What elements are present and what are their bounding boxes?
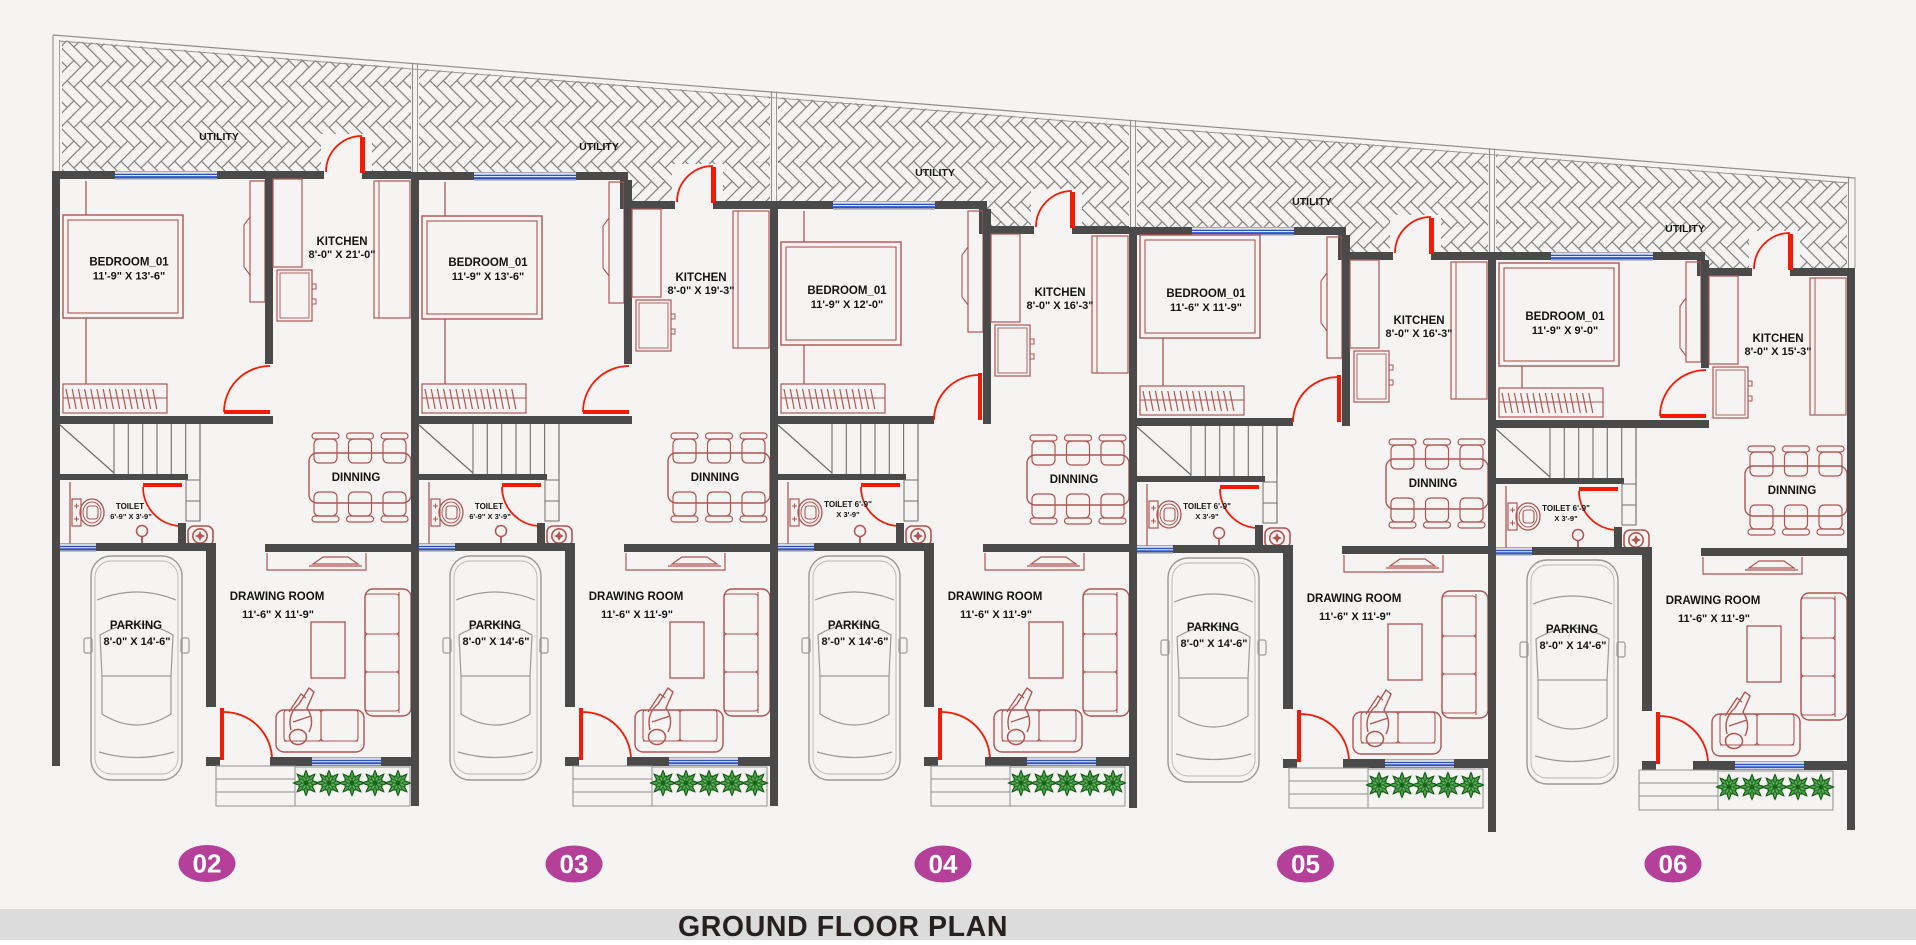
svg-text:X 3'-9": X 3'-9" (1195, 512, 1219, 521)
svg-text:PARKING: PARKING (469, 620, 521, 632)
svg-text:TOILET 6'-9": TOILET 6'-9" (824, 500, 872, 509)
svg-text:UTILITY: UTILITY (199, 131, 239, 143)
svg-text:X 3'-9": X 3'-9" (1554, 514, 1578, 523)
svg-text:11'-9" X 13'-6": 11'-9" X 13'-6" (93, 271, 166, 283)
svg-text:TOILET 6'-9": TOILET 6'-9" (1542, 504, 1590, 513)
svg-text:11'-6" X 11'-9": 11'-6" X 11'-9" (242, 609, 314, 621)
svg-text:PARKING: PARKING (110, 620, 162, 632)
svg-text:04: 04 (929, 849, 958, 879)
svg-text:BEDROOM_01: BEDROOM_01 (448, 257, 528, 269)
svg-text:BEDROOM_01: BEDROOM_01 (89, 257, 169, 269)
svg-text:UTILITY: UTILITY (1665, 223, 1705, 235)
svg-text:11'-6" X 11'-9": 11'-6" X 11'-9" (1678, 613, 1750, 625)
svg-text:8'-0" X 14'-6": 8'-0" X 14'-6" (1180, 638, 1247, 650)
svg-text:8'-0" X 14'-6": 8'-0" X 14'-6" (462, 636, 529, 648)
svg-text:KITCHEN: KITCHEN (1752, 333, 1803, 345)
svg-text:8'-0" X 14'-6": 8'-0" X 14'-6" (1539, 640, 1606, 652)
svg-text:DRAWING ROOM: DRAWING ROOM (230, 591, 325, 603)
svg-text:11'-9" X 9'-0": 11'-9" X 9'-0" (1532, 325, 1598, 337)
svg-text:KITCHEN: KITCHEN (1034, 287, 1085, 299)
svg-text:DINNING: DINNING (1768, 485, 1817, 497)
svg-text:BEDROOM_01: BEDROOM_01 (1166, 288, 1246, 300)
svg-text:TOILET: TOILET (475, 502, 503, 511)
svg-text:8'-0" X 16'-3": 8'-0" X 16'-3" (1385, 328, 1452, 340)
svg-text:05: 05 (1291, 849, 1320, 879)
svg-text:11'-6" X 11'-9": 11'-6" X 11'-9" (601, 609, 673, 621)
svg-text:11'-6" X 11'-9": 11'-6" X 11'-9" (1319, 611, 1391, 623)
svg-text:11'-9" X 13'-6": 11'-9" X 13'-6" (452, 271, 525, 283)
svg-text:UTILITY: UTILITY (1292, 196, 1332, 208)
svg-text:KITCHEN: KITCHEN (675, 272, 726, 284)
svg-text:PARKING: PARKING (828, 620, 880, 632)
svg-text:DINNING: DINNING (1050, 474, 1099, 486)
svg-text:GROUND FLOOR PLAN: GROUND FLOOR PLAN (678, 911, 1008, 940)
svg-text:DRAWING ROOM: DRAWING ROOM (1666, 595, 1761, 607)
svg-text:8'-0" X 15'-3": 8'-0" X 15'-3" (1744, 346, 1811, 358)
svg-text:8'-0" X 16'-3": 8'-0" X 16'-3" (1026, 300, 1093, 312)
svg-text:03: 03 (560, 849, 589, 879)
svg-text:DINNING: DINNING (332, 472, 381, 484)
svg-text:KITCHEN: KITCHEN (1393, 315, 1444, 327)
svg-text:UTILITY: UTILITY (915, 167, 955, 179)
svg-text:TOILET: TOILET (116, 502, 144, 511)
svg-text:PARKING: PARKING (1187, 622, 1239, 634)
svg-text:BEDROOM_01: BEDROOM_01 (1525, 311, 1605, 323)
svg-text:DINNING: DINNING (691, 472, 740, 484)
svg-text:02: 02 (193, 849, 222, 879)
svg-text:UTILITY: UTILITY (579, 141, 619, 153)
svg-text:DRAWING ROOM: DRAWING ROOM (948, 591, 1043, 603)
svg-text:6'-9" X 3'-9": 6'-9" X 3'-9" (469, 512, 511, 521)
svg-text:8'-0" X 14'-6": 8'-0" X 14'-6" (103, 636, 170, 648)
svg-text:11'-6" X 11'-9": 11'-6" X 11'-9" (1170, 302, 1242, 314)
svg-text:11'-6" X 11'-9": 11'-6" X 11'-9" (960, 609, 1032, 621)
svg-text:8'-0" X 19'-3": 8'-0" X 19'-3" (667, 285, 734, 297)
svg-text:8'-0" X 14'-6": 8'-0" X 14'-6" (821, 636, 888, 648)
svg-text:PARKING: PARKING (1546, 624, 1598, 636)
svg-text:06: 06 (1659, 849, 1688, 879)
svg-text:X 3'-9": X 3'-9" (836, 510, 860, 519)
svg-text:TOILET 6'-9": TOILET 6'-9" (1183, 502, 1231, 511)
svg-text:6'-9" X 3'-9": 6'-9" X 3'-9" (110, 512, 152, 521)
svg-text:11'-9" X 12'-0": 11'-9" X 12'-0" (811, 299, 884, 311)
svg-text:DINNING: DINNING (1409, 478, 1458, 490)
svg-text:BEDROOM_01: BEDROOM_01 (807, 285, 887, 297)
svg-text:DRAWING ROOM: DRAWING ROOM (1307, 593, 1402, 605)
svg-text:8'-0" X 21'-0": 8'-0" X 21'-0" (308, 249, 375, 261)
svg-text:KITCHEN: KITCHEN (316, 236, 367, 248)
svg-text:DRAWING ROOM: DRAWING ROOM (589, 591, 684, 603)
